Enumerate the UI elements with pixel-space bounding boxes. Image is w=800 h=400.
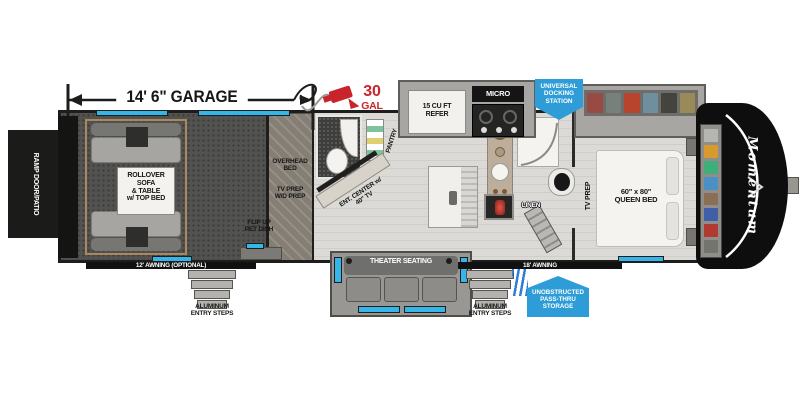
toilet-icon [548, 168, 575, 196]
bedroom-tv-prep-label: TV PREP [585, 182, 593, 211]
awning-12-label: 12' AWNING (OPTIONAL) [86, 262, 256, 269]
kitchen-island [428, 166, 478, 228]
theater-seating-label: THEATER SEATING [346, 258, 456, 266]
bedroom-window [618, 256, 664, 262]
fuel-nozzle-icon [322, 84, 360, 116]
fuel-capacity-label: 30 GAL [355, 83, 389, 113]
slide-window [334, 257, 342, 283]
ramp-door-label: RAMP DOOR/PATIO [31, 153, 39, 216]
queen-bed-label: 60" x 80" QUEEN BED [604, 188, 668, 205]
bedroom-dresser-slide [574, 84, 706, 138]
sofa-console [126, 227, 148, 247]
microwave: MICRO [472, 86, 524, 102]
theater-cushion [346, 277, 381, 302]
pet-dish [246, 243, 264, 249]
coil-hose-icon [512, 266, 528, 296]
sink-icon [449, 191, 457, 205]
kitchen-slide: 15 CU FT REFER MICRO [398, 80, 536, 138]
front-wardrobe [700, 124, 722, 258]
dresser-items [584, 90, 698, 116]
stove-icon [472, 104, 524, 137]
slide-window [404, 306, 446, 313]
garage-dimension-label: 14' 6" GARAGE [116, 88, 248, 106]
slide-window [358, 306, 400, 313]
theater-cushion [384, 277, 419, 302]
sink-icon [491, 163, 509, 181]
rollover-sofa-label: ROLLOVER SOFA & TABLE w/ TOP BED [117, 167, 175, 215]
momentum-brand-label: Momentum [745, 136, 760, 236]
fireplace-icon [484, 194, 514, 220]
overhead-bed-label: OVERHEAD BED [264, 158, 316, 173]
fuel-unit: GAL [355, 101, 389, 113]
floorplan: RAMP DOOR/PATIO ROLLOVER SOFA & TABLE w/… [0, 0, 800, 400]
tv-wd-prep-label: TV PREP W/D PREP [264, 186, 316, 201]
pillow [666, 202, 679, 240]
linen-label: LINEN [512, 202, 550, 209]
pass-thru-badge: UNOBSTRUCTED PASS-THRU STORAGE [527, 276, 589, 317]
awning-18-label: 18' AWNING [458, 262, 622, 269]
entry-steps-label: ALUMINUM ENTRY STEPS [174, 303, 250, 318]
pet-dish-label: FLIP UP PET DISH [230, 219, 288, 234]
entry-steps-label: ALUMINUM ENTRY STEPS [452, 303, 528, 318]
bedroom-wall [572, 228, 575, 261]
theater-cushion [422, 277, 457, 302]
fuel-amount: 30 [355, 83, 389, 101]
